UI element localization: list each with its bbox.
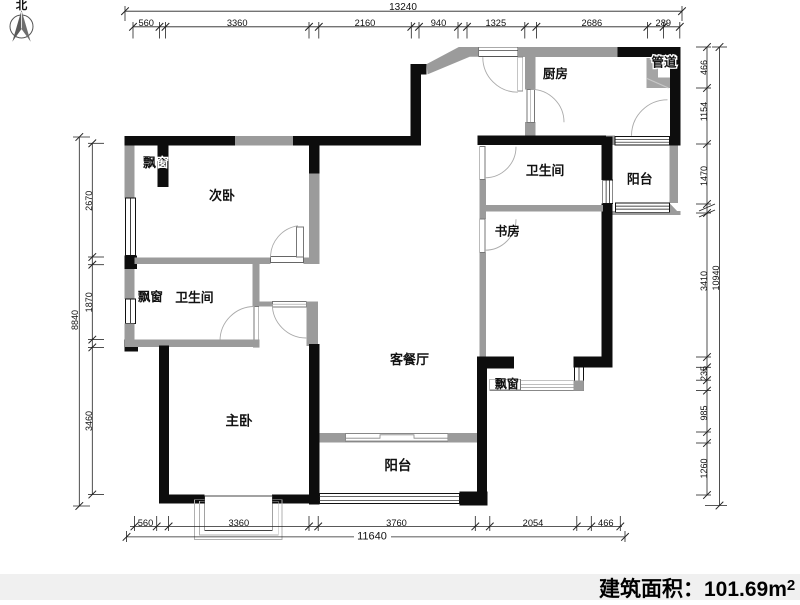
svg-text:985: 985 (699, 405, 709, 420)
svg-text:2686: 2686 (582, 18, 603, 28)
svg-text:466: 466 (699, 60, 709, 75)
svg-text:卫生间: 卫生间 (526, 163, 564, 178)
svg-text:飘窗: 飘窗 (495, 376, 519, 391)
svg-text:1470: 1470 (699, 166, 709, 186)
svg-text:560: 560 (138, 18, 154, 28)
svg-text:3360: 3360 (228, 518, 249, 528)
svg-text:阳台: 阳台 (384, 457, 411, 473)
svg-text:飘窗: 飘窗 (143, 155, 169, 170)
svg-text:1325: 1325 (485, 18, 506, 28)
svg-text:3760: 3760 (386, 518, 407, 528)
svg-text:管道: 管道 (651, 54, 677, 69)
svg-text:466: 466 (598, 518, 614, 528)
svg-text:560: 560 (138, 518, 154, 528)
svg-text:厨房: 厨房 (543, 66, 568, 81)
svg-text:235: 235 (699, 366, 709, 381)
svg-text:3460: 3460 (84, 411, 94, 431)
svg-text:卫生间: 卫生间 (175, 290, 213, 305)
svg-text:940: 940 (431, 18, 447, 28)
svg-text:客餐厅: 客餐厅 (390, 352, 429, 367)
svg-text:建筑面积：101.69m2: 建筑面积：101.69m2 (599, 577, 795, 600)
svg-text:3360: 3360 (227, 18, 248, 28)
svg-text:2054: 2054 (523, 518, 544, 528)
svg-text:阳台: 阳台 (627, 172, 653, 187)
svg-text:书房: 书房 (495, 223, 520, 238)
svg-text:飘窗: 飘窗 (138, 289, 163, 304)
svg-text:11640: 11640 (357, 530, 387, 542)
svg-text:1154: 1154 (699, 102, 709, 121)
svg-text:10940: 10940 (711, 265, 721, 290)
svg-text:主卧: 主卧 (226, 413, 253, 429)
svg-text:2670: 2670 (84, 191, 94, 211)
svg-text:2160: 2160 (355, 18, 376, 28)
svg-text:289: 289 (656, 18, 672, 28)
svg-text:3410: 3410 (699, 271, 709, 291)
svg-text:8840: 8840 (70, 310, 80, 330)
svg-text:次卧: 次卧 (209, 188, 235, 203)
svg-text:1870: 1870 (84, 292, 94, 312)
svg-text:13240: 13240 (389, 2, 417, 13)
svg-text:北: 北 (16, 0, 28, 12)
svg-text:1260: 1260 (699, 458, 709, 478)
